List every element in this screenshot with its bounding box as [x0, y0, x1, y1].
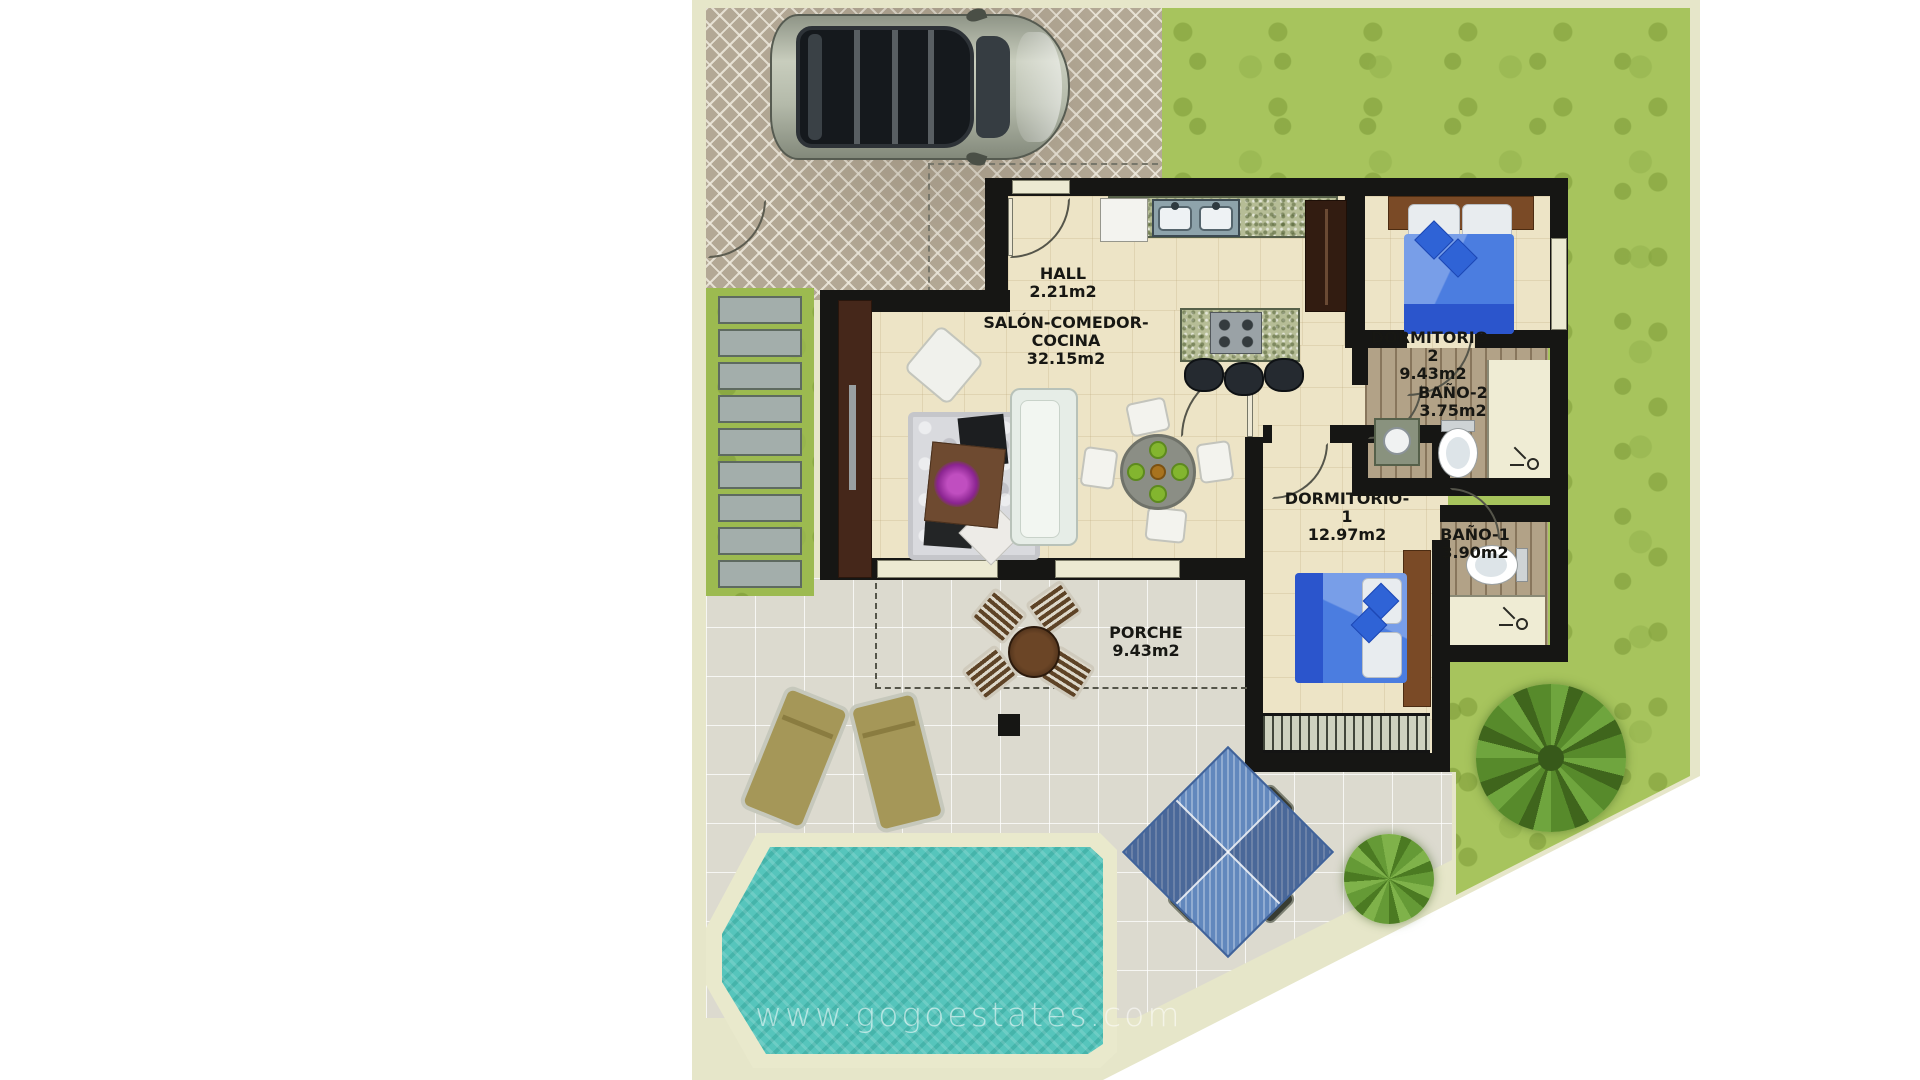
room-name: PORCHE [1100, 624, 1192, 642]
wall [1352, 348, 1368, 385]
room-label-bano1: BAÑO-1 3.90m2 [1432, 526, 1518, 562]
plate [1127, 463, 1145, 481]
hedge-bush-icon [1620, 65, 1680, 125]
shower-drain-icon [1510, 464, 1524, 466]
room-area: 2.21m2 [1022, 283, 1104, 301]
shrub-icon [1344, 834, 1434, 924]
shower-drain-icon [1499, 624, 1513, 626]
hedge-bush-icon [1529, 13, 1589, 73]
flower-centerpiece [934, 461, 980, 507]
dining-chair [1195, 440, 1234, 484]
room-label-dormitorio2: DORMITORIO-2 9.43m2 [1368, 329, 1498, 383]
room-name: HALL [1022, 265, 1104, 283]
hedge-bush-icon [1600, 400, 1660, 460]
stove [1210, 312, 1262, 354]
bathroom1-shower [1443, 595, 1545, 647]
entry-door-leaf [1008, 198, 1013, 256]
room-name: BAÑO-2 [1410, 384, 1496, 402]
barstool [1184, 358, 1224, 392]
wall [1245, 753, 1448, 772]
entry-door-opening [1012, 180, 1070, 194]
window [877, 560, 998, 578]
barstool [1224, 362, 1264, 396]
watermark: www.gogoestates.com [755, 995, 1145, 1034]
bed-footer [1295, 573, 1323, 683]
tv [849, 385, 856, 490]
hedge-bush-icon [1600, 576, 1660, 636]
wall [1245, 437, 1263, 580]
wall [820, 290, 838, 580]
table-bowl [1150, 464, 1166, 480]
car-hood [1016, 32, 1062, 142]
bed-headboard [1403, 550, 1431, 707]
wardrobe [1305, 200, 1347, 312]
room-area: 32.15m2 [950, 350, 1182, 368]
room-area: 12.97m2 [1280, 526, 1414, 544]
bathroom-sink [1374, 418, 1420, 466]
shower-drain-icon [1527, 458, 1539, 470]
garden-steps [718, 296, 802, 588]
room-area: 9.43m2 [1368, 365, 1498, 383]
room-name: SALÓN-COMEDOR-COCINA [950, 314, 1182, 350]
wall [1352, 440, 1368, 480]
toilet-bowl [1438, 428, 1478, 478]
room-name: DORMITORIO-2 [1368, 329, 1498, 365]
window [1551, 238, 1567, 330]
room-name: DORMITORIO-1 [1280, 490, 1414, 526]
room-area: 3.75m2 [1410, 402, 1496, 420]
fridge [1100, 198, 1148, 242]
room-label-salon: SALÓN-COMEDOR-COCINA 32.15m2 [950, 314, 1182, 368]
wall [985, 178, 1568, 196]
room-label-porche: PORCHE 9.43m2 [1100, 624, 1192, 660]
shower-drain-icon [1516, 618, 1528, 630]
car-windshield [976, 36, 1010, 138]
car-icon [770, 14, 1070, 160]
porch-table [1008, 626, 1060, 678]
room-area: 3.90m2 [1432, 544, 1518, 562]
room-area: 9.43m2 [1100, 642, 1192, 660]
dining-chair [1079, 446, 1118, 490]
hedge-bush-icon [1315, 12, 1375, 72]
plate [1149, 485, 1167, 503]
plate [1171, 463, 1189, 481]
car-roof-glass [796, 26, 974, 148]
hedge-bush-icon [1475, 10, 1535, 70]
hedge-bush-icon [1600, 140, 1660, 200]
wall [1345, 196, 1365, 348]
hedge-bush-icon [1600, 312, 1660, 372]
room-label-dormitorio1: DORMITORIO-1 12.97m2 [1280, 490, 1414, 544]
barstool [1264, 358, 1304, 392]
hedge-bush-icon [1368, 10, 1428, 70]
room-label-bano2: BAÑO-2 3.75m2 [1410, 384, 1496, 420]
wall [1245, 580, 1263, 772]
hedge-bush-icon [1582, 10, 1642, 70]
wall [1263, 425, 1272, 443]
hedge-bush-icon [1422, 12, 1482, 72]
dining-chair [1144, 506, 1187, 544]
sofa [1010, 388, 1078, 546]
hedge-bush-icon [1261, 8, 1321, 68]
palm-tree-center [1538, 745, 1564, 771]
window [1055, 560, 1180, 578]
floorplan-canvas: HALL 2.21m2 SALÓN-COMEDOR-COCINA 32.15m2… [0, 0, 1920, 1080]
porch-post [998, 714, 1020, 736]
wall [1440, 645, 1568, 662]
plate [1149, 441, 1167, 459]
louver-strip [1263, 713, 1430, 753]
room-label-hall: HALL 2.21m2 [1022, 265, 1104, 301]
kitchen-sink [1152, 199, 1240, 237]
hedge-bush-icon [1207, 10, 1267, 70]
hedge-bush-icon [1600, 225, 1660, 285]
room-name: BAÑO-1 [1432, 526, 1518, 544]
hedge-bush-icon [1600, 488, 1660, 548]
